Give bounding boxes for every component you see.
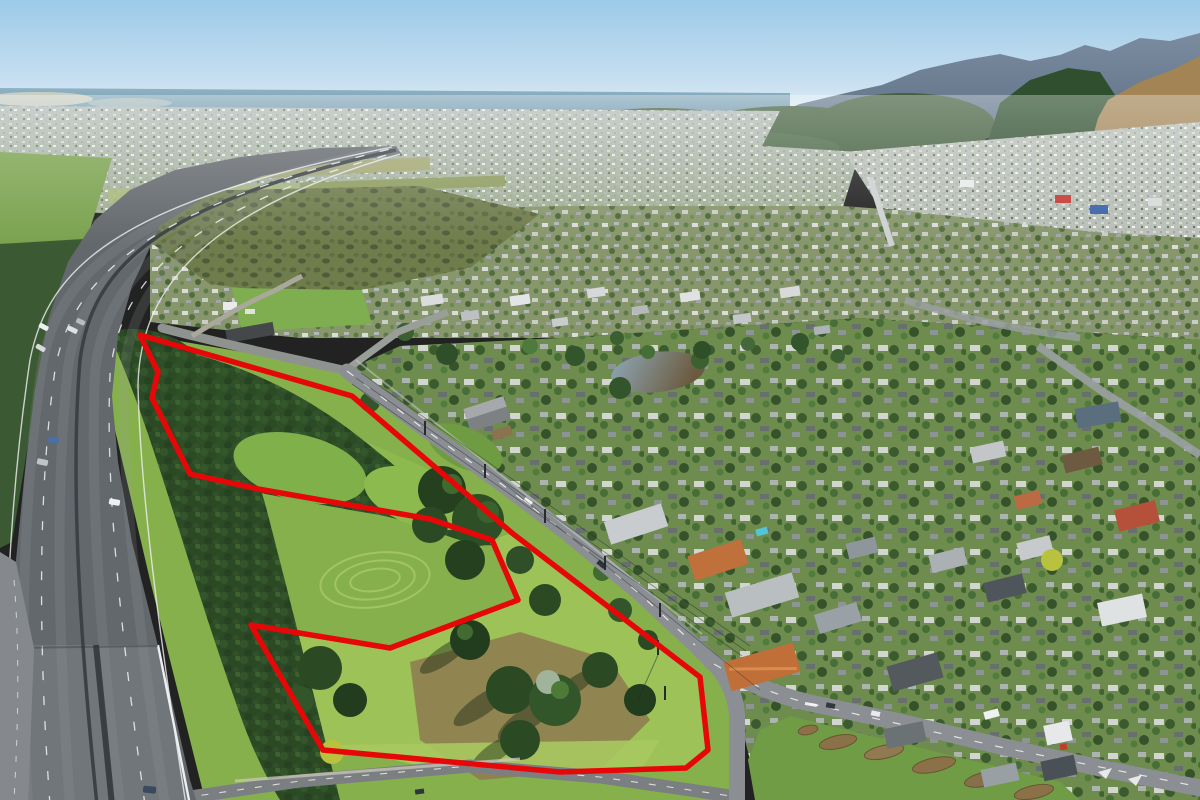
aerial-photo-stage (0, 0, 1200, 800)
atmospheric-haze (0, 95, 1200, 245)
yellow-tree-right (1041, 549, 1063, 571)
aerial-photo (0, 0, 1200, 800)
